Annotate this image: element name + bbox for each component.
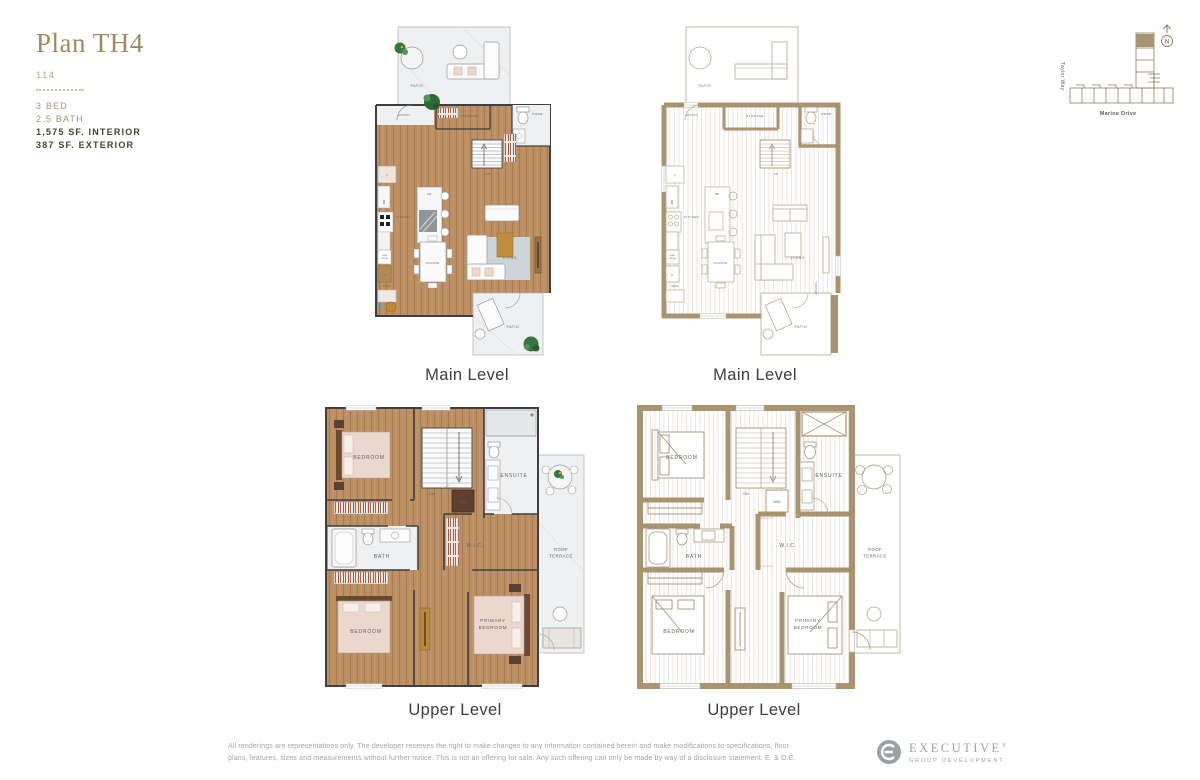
powder-room: PWDR.: [512, 105, 550, 146]
svg-text:DINING: DINING: [714, 261, 728, 265]
svg-text:BEDROOM: BEDROOM: [794, 625, 823, 630]
spec-bed: 3 BED: [36, 100, 144, 113]
svg-text:NOOK: NOOK: [672, 286, 679, 288]
svg-text:FRIDGE: FRIDGE: [381, 258, 389, 260]
svg-text:KITCHEN: KITCHEN: [684, 215, 699, 219]
svg-text:DN: DN: [743, 492, 749, 496]
svg-text:PATIO: PATIO: [795, 325, 808, 329]
svg-text:N: N: [1165, 39, 1169, 45]
closet: [334, 502, 388, 514]
svg-text:STORAGE: STORAGE: [746, 114, 764, 118]
street-label-taylor-way: Taylor Way: [1059, 62, 1065, 91]
patio-top: PATIO: [686, 27, 798, 105]
svg-text:W/D: W/D: [459, 500, 467, 504]
svg-text:PRIMARY: PRIMARY: [795, 618, 821, 623]
laundry: W/D: [766, 490, 788, 512]
developer-logo: EXECUTIVE® GROUP DEVELOPMENT: [876, 739, 1009, 765]
floorplan-main-line: PATIO PATIO DINING STORAGE: [660, 16, 850, 360]
patio-top: PATIO: [395, 27, 511, 105]
coffee-table: [497, 233, 513, 257]
dotted-divider: [36, 89, 84, 91]
disclaimer: All renderings are representations only.…: [228, 741, 880, 764]
unit-number: 114: [36, 70, 144, 81]
svg-text:DINING: DINING: [426, 261, 440, 265]
unit-highlight: [1137, 34, 1154, 47]
north-arrow-icon: N: [1162, 25, 1173, 47]
svg-text:ENTRY: ENTRY: [398, 113, 411, 117]
disclaimer-line-2: plans, features, sizes and measurements …: [228, 753, 880, 765]
svg-text:WINE: WINE: [382, 255, 388, 257]
svg-text:PWDR.: PWDR.: [821, 112, 833, 116]
svg-text:TERRACE: TERRACE: [549, 554, 573, 559]
roof-terrace: ROOF TERRACE: [852, 455, 900, 653]
svg-text:UP: UP: [774, 172, 778, 176]
floorplan-upper-line: ROOF TERRACE BEDROOM DN: [636, 402, 906, 694]
svg-text:DN: DN: [429, 492, 435, 496]
svg-text:PWDR.: PWDR.: [532, 112, 544, 116]
svg-text:WINE: WINE: [670, 255, 676, 257]
svg-text:PATIO: PATIO: [507, 325, 520, 329]
svg-text:W.I.C.: W.I.C.: [779, 543, 796, 549]
svg-text:ROOF: ROOF: [868, 547, 882, 552]
roof-terrace: ROOF TERRACE: [538, 455, 584, 653]
site-keyplan: N Taylor Way Marine Drive: [1032, 22, 1187, 122]
dining: DINING: [414, 236, 452, 288]
patio-wall: [831, 295, 838, 353]
stairs: DN: [736, 428, 786, 496]
svg-text:STORAGE: STORAGE: [460, 114, 478, 118]
logo-text: EXECUTIVE® GROUP DEVELOPMENT: [909, 741, 1009, 764]
brochure-page: Plan TH4 114 3 BED 2.5 BATH 1,575 SF. IN…: [0, 0, 1200, 780]
svg-text:LIVING: LIVING: [503, 256, 517, 260]
caption-upper-left: Upper Level: [322, 701, 588, 720]
svg-text:NOOK: NOOK: [383, 286, 391, 288]
patio-bottom: PATIO: [473, 293, 543, 355]
svg-text:BEDROOM: BEDROOM: [479, 625, 508, 630]
closet: [334, 572, 388, 584]
building-outline: [1070, 33, 1173, 103]
logo-subtitle: GROUP DEVELOPMENT: [909, 758, 1009, 764]
svg-text:F: F: [386, 174, 388, 178]
svg-text:W.I.C.: W.I.C.: [466, 543, 483, 549]
page-title: Plan TH4: [36, 28, 144, 59]
logo-name: EXECUTIVE®: [909, 741, 1009, 756]
svg-text:ROOF: ROOF: [554, 547, 568, 552]
svg-text:BEDROOM: BEDROOM: [666, 455, 697, 461]
svg-text:BEDROOM: BEDROOM: [350, 629, 381, 635]
stairs: DN: [422, 428, 472, 496]
svg-text:PATIO: PATIO: [699, 84, 712, 88]
svg-text:PATIO: PATIO: [411, 84, 424, 88]
svg-text:KITCHEN: KITCHEN: [396, 215, 411, 219]
svg-text:P: P: [672, 273, 674, 277]
floorplan-main-rendered: PATIO PATIO STORAGE: [372, 16, 562, 360]
svg-text:W/D: W/D: [773, 500, 781, 504]
svg-text:BEDROOM: BEDROOM: [353, 455, 384, 461]
svg-text:P: P: [384, 273, 386, 277]
nook-chair: [386, 302, 396, 312]
laundry: W/D: [452, 490, 474, 512]
title-block: Plan TH4 114 3 BED 2.5 BATH 1,575 SF. IN…: [36, 28, 144, 152]
logo-emblem-icon: [876, 739, 902, 765]
registered-mark: ®: [1002, 742, 1009, 748]
spec-exterior: 387 SF. EXTERIOR: [36, 139, 144, 152]
svg-text:LIVING: LIVING: [791, 256, 805, 260]
svg-text:ENSUITE: ENSUITE: [815, 473, 842, 479]
caption-upper-right: Upper Level: [636, 701, 872, 720]
disclaimer-line-1: All renderings are representations only.…: [228, 741, 880, 753]
street-label-marine-drive: Marine Drive: [1100, 111, 1137, 117]
svg-text:BATH: BATH: [686, 554, 702, 560]
svg-text:FRIDGE: FRIDGE: [669, 258, 677, 260]
caption-main-left: Main Level: [372, 366, 562, 385]
caption-main-right: Main Level: [660, 366, 850, 385]
svg-text:BATH: BATH: [374, 554, 390, 560]
spec-interior: 1,575 SF. INTERIOR: [36, 126, 144, 139]
svg-text:BEDROOM: BEDROOM: [663, 629, 694, 635]
spec-bath: 2.5 BATH: [36, 113, 144, 126]
floorplan-upper-rendered: ROOF TERRACE BEDROOM: [322, 402, 588, 694]
svg-text:ENTRY: ENTRY: [686, 113, 699, 117]
svg-text:TERRACE: TERRACE: [863, 554, 887, 559]
svg-text:PRIMARY: PRIMARY: [480, 618, 506, 623]
svg-text:ENSUITE: ENSUITE: [500, 473, 527, 479]
svg-text:F: F: [674, 174, 676, 178]
svg-text:UP: UP: [486, 172, 491, 176]
svg-text:DINING: DINING: [814, 281, 818, 294]
